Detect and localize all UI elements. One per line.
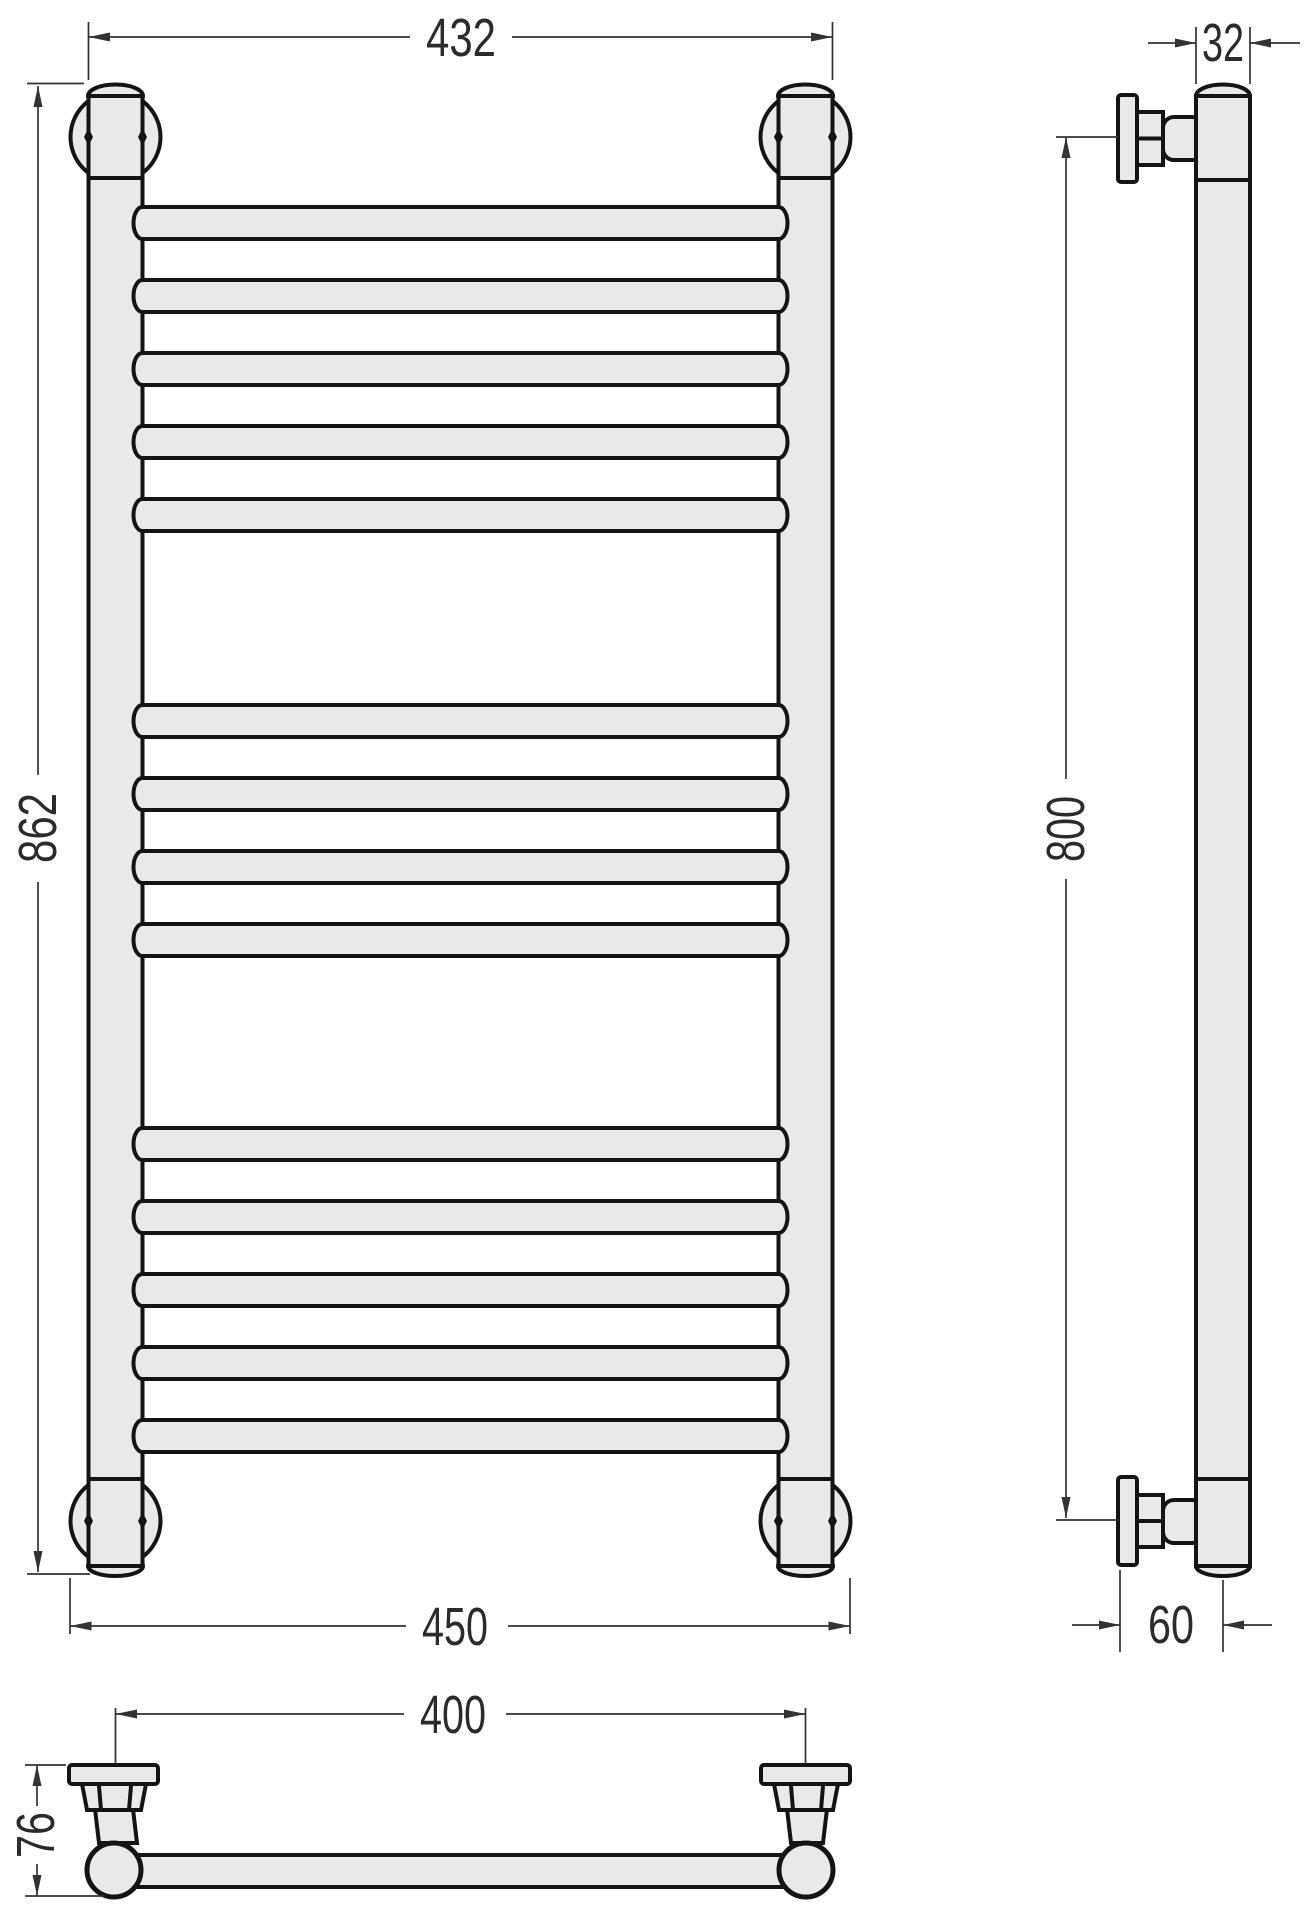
bracket-wall-plate-icon [1118,95,1137,182]
bracket-wall-plate-icon [1118,1477,1137,1565]
rung [134,924,788,956]
bottom-stem-left [95,1809,137,1843]
rung [134,1347,788,1379]
bottom-stem-right [787,1809,827,1843]
post-left-body [89,96,143,1566]
dim-label-60: 60 [1148,1595,1194,1655]
dim-label-800: 800 [1036,796,1096,862]
dimension-side-height: 800 [1036,137,1118,1520]
rung [134,280,788,312]
bottom-view [69,1765,850,1897]
side-tube [1194,85,1252,1577]
drawing-page: 432 862 450 400 76 800 32 [0,0,1316,1920]
rung [134,705,788,737]
bottom-wall-plate-right [761,1765,850,1784]
dim-label-76: 76 [6,1812,66,1858]
mount-tangent-marks [84,128,837,1530]
post-right-body [779,96,833,1566]
bottom-rung-tube [120,1855,792,1887]
towel-rail-drawing: 432 862 450 400 76 800 32 [0,0,1316,1920]
rung [134,207,788,239]
rung [134,426,788,458]
rung [134,778,788,810]
dimension-bottom-centers: 400 [116,1685,806,1764]
rungs [134,207,788,1452]
dim-label-862: 862 [8,793,68,863]
side-tube-body [1196,96,1250,1566]
dim-label-32: 32 [1202,13,1244,73]
rung [134,1274,788,1306]
front-view [71,85,851,1577]
dimension-front-width-top: 432 [89,8,833,80]
dim-label-432: 432 [426,8,496,68]
bottom-post-ball-right [779,1843,833,1897]
bottom-post-ball-left [87,1843,141,1897]
dimension-front-width-bottom: 450 [70,1578,850,1657]
bottom-wall-plate-left [69,1765,158,1784]
dim-label-400: 400 [420,1685,486,1745]
dimension-tube-diameter: 32 [1148,13,1300,84]
dim-label-450: 450 [422,1597,488,1657]
dimension-front-height: 862 [8,84,90,1575]
rung [134,353,788,385]
rung [134,1128,788,1160]
bottom-hex-left [82,1784,146,1810]
rung [134,1420,788,1452]
bottom-hex-right [774,1784,838,1810]
rung [134,1201,788,1233]
rung [134,851,788,883]
side-bracket-bottom [1118,1477,1203,1565]
dimension-wall-offset: 60 [1072,1570,1272,1655]
side-bracket-top [1118,95,1203,182]
side-view [1118,85,1252,1577]
rung [134,499,788,531]
